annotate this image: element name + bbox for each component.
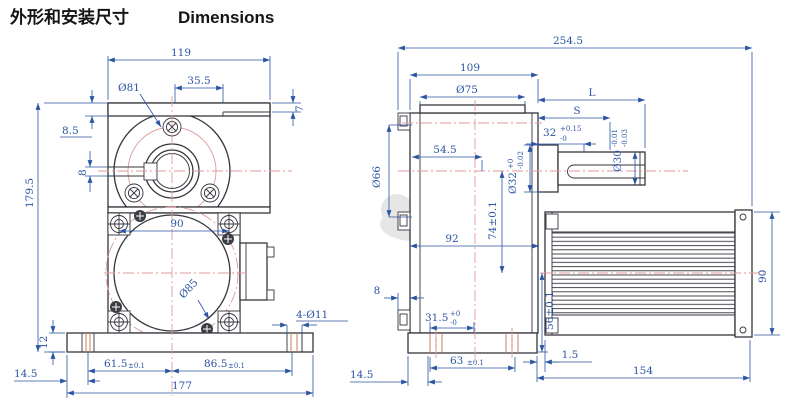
side-view: 254.5 109 Ø75 L S 32 +0.15 -0 54.5 <box>350 35 780 386</box>
dim-shaft-dia-sup: -0.01 <box>611 129 619 147</box>
mounting-base <box>67 333 313 352</box>
front-view: 119 35.5 Ø81 7 8.5 179.5 8 90 Ø8 <box>14 47 348 398</box>
dim-center-to-slot-tol: ±0.1 <box>228 362 245 370</box>
motor-end-cap <box>735 210 752 337</box>
dim-overall-length: 254.5 <box>553 35 583 47</box>
dim-screw-spacing: 90 <box>170 218 183 230</box>
dim-foot-slots: 4-Ø11 <box>296 309 328 321</box>
side-housing <box>398 105 538 353</box>
bore-keyway <box>144 163 157 180</box>
dim-motor-length: 154 <box>633 365 653 377</box>
dim-key-cut-sup: +0.15 <box>560 125 581 133</box>
drawing-title-zh: 外形和安装尺寸 <box>10 7 129 27</box>
dim-base-width: 177 <box>172 380 192 392</box>
dim-base-inset-sub: -0 <box>450 319 457 327</box>
dim-step-height: 7 <box>294 105 306 112</box>
motor-body <box>545 210 752 337</box>
dim-overall-height: 179.5 <box>24 178 36 208</box>
dim-axis-to-motor-axis: 74±0.1 <box>487 201 499 240</box>
dim-slot-edge-offset: 14.5 <box>14 368 37 380</box>
drawing-title-en: Dimensions <box>178 8 274 27</box>
dim-flange-thickness: 8.5 <box>62 125 79 137</box>
dim-shaft-dia: Ø30 <box>612 150 624 172</box>
dim-base-slot-span: 63 <box>450 355 463 367</box>
dim-motor-axis-to-base: 56±0.1 <box>544 291 556 330</box>
dim-shaft-length: L <box>589 87 596 99</box>
dim-hub-dia-sub: -0.02 <box>517 151 525 169</box>
dim-hub-dia-sup: +0 <box>507 159 515 169</box>
dim-slot-to-center: 61.5 <box>104 358 127 370</box>
dim-base-inset-sup: +0 <box>450 310 460 318</box>
dim-base-to-motor-gap: 1.5 <box>562 349 579 361</box>
dim-motor-height: 90 <box>757 270 769 283</box>
dim-step-width: 35.5 <box>187 75 210 87</box>
dim-bore-keyway-width: 8 <box>77 169 89 176</box>
dim-housing-depth: 92 <box>445 233 458 245</box>
dim-gear-bolt-circle: Ø81 <box>118 82 140 94</box>
terminal-box <box>240 243 274 300</box>
dim-top-boss-dia: Ø75 <box>456 84 478 96</box>
dim-lug-thickness: 8 <box>374 285 381 297</box>
dim-gearbox-width: 109 <box>460 62 480 74</box>
dim-shaft-dia-sub: -0.03 <box>621 129 629 147</box>
dim-key-length: S <box>573 105 580 117</box>
dimension-drawing: 外形和安装尺寸 Dimensions <box>0 0 800 410</box>
dim-base-slot-span-tol: ±0.1 <box>467 359 484 367</box>
dim-key-cut-sub: -0 <box>560 135 567 143</box>
dim-side-slot-edge-offset: 14.5 <box>350 369 373 381</box>
dim-base-inset: 31.5 <box>425 312 448 324</box>
dim-side-boss-dia: Ø66 <box>371 166 383 188</box>
dim-center-to-slot: 86.5 <box>204 358 227 370</box>
dim-hub-dia: Ø32 <box>507 172 519 194</box>
dim-face-to-axis: 54.5 <box>433 144 456 156</box>
motor-cooling-fins <box>552 232 735 315</box>
dim-key-cut: 32 <box>543 127 556 139</box>
dim-top-width: 119 <box>171 47 191 59</box>
output-shaft <box>538 145 645 192</box>
dim-base-thickness: 12 <box>38 336 50 349</box>
dim-slot-to-center-tol: ±0.1 <box>128 362 145 370</box>
